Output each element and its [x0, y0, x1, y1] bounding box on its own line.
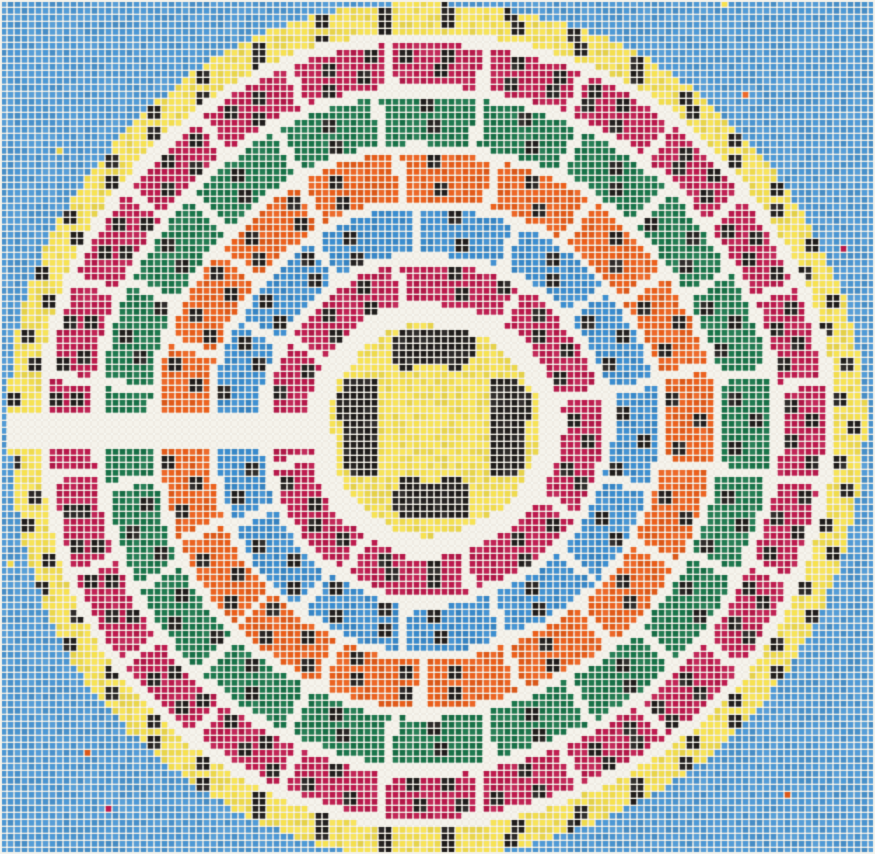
needlepoint-artwork [0, 0, 875, 854]
cross-stitch-stadium-pattern-canvas [0, 0, 875, 854]
